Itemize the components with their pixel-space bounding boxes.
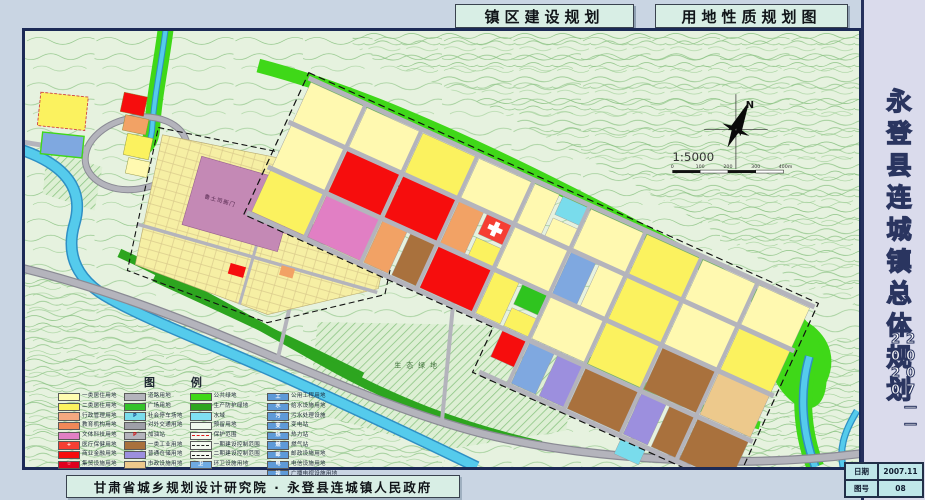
legend-item: 工公用工程用地 [267, 393, 337, 401]
legend-item: 二类居住用地 [58, 403, 117, 411]
legend-item: 水给水设施用地 [267, 403, 337, 411]
legend-glyph: 电 [276, 462, 281, 467]
legend-label: 一类居住用地 [82, 394, 117, 400]
sidebar: 永登县连城镇总体规划 2007——2020 [861, 0, 925, 500]
legend-swatch [58, 432, 80, 441]
legend-item: 对外交通用地 [124, 422, 183, 430]
legend-item: 污污水处理设施 [267, 412, 337, 420]
legend-label: 道路用地 [148, 394, 171, 400]
legend-swatch: ☆ [58, 461, 80, 470]
legend-label: 二期建设控制范围 [214, 452, 260, 458]
scale-tick: 0 [671, 164, 674, 170]
legend-item: 普通仓储用地 [124, 451, 183, 459]
legend-label: 加油站 [148, 433, 165, 439]
legend-label: 一期建设控制范围 [214, 443, 260, 449]
legend-label: 变电站 [291, 423, 308, 429]
legend-glyph: P [133, 414, 137, 419]
legend-column: 道路用地广场用地P社会停车场地对外交通用地P加油站一类工业用地普通仓储用地市政设… [124, 393, 183, 469]
legend-item: 一类工业用地 [124, 441, 183, 449]
legend-swatch: P [124, 412, 146, 421]
info-table: 日期 2007.11 图号 08 [844, 462, 924, 498]
legend-swatch [58, 393, 80, 402]
legend-label: 二类居住用地 [82, 404, 117, 410]
legend-label: 生产防护绿地 [214, 404, 249, 410]
legend-swatch: 电 [267, 461, 289, 470]
north-label: N [746, 100, 754, 111]
legend-label: 预留用地 [214, 423, 237, 429]
west-village [34, 92, 88, 158]
legend-item: 生产防护绿地 [190, 403, 260, 411]
credit-box: 甘肃省城乡规划设计研究院 · 永登县连城镇人民政府 [66, 475, 460, 498]
legend-label: 公用工程用地 [291, 394, 326, 400]
legend-label: 对外交通用地 [148, 423, 183, 429]
legend-swatch [124, 441, 146, 450]
legend-swatch: P [124, 432, 146, 441]
legend-label: 普通仓储用地 [148, 452, 183, 458]
legend-label: 燃气站 [291, 443, 308, 449]
legend-swatch [124, 461, 146, 470]
header-title-plan: 镇区建设规划 [455, 4, 634, 28]
header-title-plan-text: 镇区建设规划 [484, 6, 604, 27]
legend-glyph: 工 [276, 395, 281, 400]
sheet-label: 图号 [845, 480, 878, 497]
legend-item: 道路用地 [124, 393, 183, 401]
legend-item: 变变电站 [267, 422, 337, 430]
legend-item: 公共绿地 [190, 393, 260, 401]
eco-green-label: 生态绿地 [394, 360, 442, 369]
legend-glyph: P [133, 433, 137, 438]
legend-item: ☆集贸设施用地 [58, 461, 117, 469]
legend-label: 公共绿地 [214, 394, 237, 400]
legend-item: 卫环卫设施用地 [190, 461, 260, 469]
legend: 图 例 一类居住用地二类居住用地行政管理用地教育机构用地文体科技用地+医疗保健用… [58, 374, 376, 479]
scale-tick: 100 [696, 164, 705, 170]
legend-swatch: 水 [267, 403, 289, 412]
legend-label: 集贸设施用地 [82, 462, 117, 468]
legend-glyph: 卫 [198, 462, 203, 467]
legend-glyph: 水 [276, 404, 281, 409]
legend-column: 一类居住用地二类居住用地行政管理用地教育机构用地文体科技用地+医疗保健用地商业金… [58, 393, 117, 469]
legend-label: 文体科技用地 [82, 433, 117, 439]
legend-swatch [190, 451, 212, 460]
legend-swatch [124, 422, 146, 431]
legend-item: 一类居住用地 [58, 393, 117, 401]
scale-text: 1:5000 [672, 150, 714, 164]
legend-swatch [190, 412, 212, 421]
legend-item: +医疗保健用地 [58, 441, 117, 449]
legend-label: 商业金融用地 [82, 452, 117, 458]
legend-swatch [58, 422, 80, 431]
legend-title: 图 例 [144, 374, 376, 390]
legend-column: 公共绿地生产防护绿地水域预留用地保护范围一期建设控制范围二期建设控制范围卫环卫设… [190, 393, 260, 469]
legend-glyph: ☆ [67, 462, 71, 467]
date-value: 2007.11 [878, 463, 923, 480]
legend-swatch [124, 451, 146, 460]
legend-label: 医疗保健用地 [82, 443, 117, 449]
legend-swatch [190, 393, 212, 402]
legend-label: 行政管理用地 [82, 414, 117, 420]
legend-item: 文体科技用地 [58, 432, 117, 440]
legend-swatch [190, 432, 212, 441]
legend-label: 环卫设施用地 [214, 462, 249, 468]
legend-swatch [190, 441, 212, 450]
legend-swatch [190, 403, 212, 412]
legend-label: 水域 [214, 414, 226, 420]
legend-item: 水域 [190, 412, 260, 420]
scale-tick: 200 [723, 164, 732, 170]
legend-swatch: 变 [267, 422, 289, 431]
legend-swatch [58, 412, 80, 421]
legend-item: 商业金融用地 [58, 451, 117, 459]
legend-item: 保护范围 [190, 432, 260, 440]
legend-label: 保护范围 [214, 433, 237, 439]
legend-item: 教育机构用地 [58, 422, 117, 430]
legend-swatch: + [58, 441, 80, 450]
legend-item: 行政管理用地 [58, 412, 117, 420]
scale-tick: 400m [779, 164, 793, 170]
legend-item: P社会停车场地 [124, 412, 183, 420]
legend-swatch [124, 403, 146, 412]
legend-label: 热力站 [291, 433, 308, 439]
legend-item: 广场用地 [124, 403, 183, 411]
legend-swatch [124, 393, 146, 402]
legend-glyph: 邮 [276, 453, 281, 458]
legend-swatch: 工 [267, 393, 289, 402]
legend-item: 预留用地 [190, 422, 260, 430]
legend-label: 邮政设施用地 [291, 452, 326, 458]
legend-columns: 一类居住用地二类居住用地行政管理用地教育机构用地文体科技用地+医疗保健用地商业金… [58, 393, 376, 479]
header-title-sheet-text: 用地性质规划图 [681, 6, 821, 27]
legend-item: 邮邮政设施用地 [267, 451, 337, 459]
plan-sheet: 镇区建设规划 用地性质规划图 [0, 0, 925, 500]
legend-label: 一类工业用地 [148, 443, 183, 449]
legend-item: 市政设施用地 [124, 461, 183, 469]
legend-item: 电电信设施用地 [267, 461, 337, 469]
legend-label: 社会停车场地 [148, 414, 183, 420]
legend-swatch [58, 403, 80, 412]
legend-swatch: 邮 [267, 451, 289, 460]
scale-tick: 300 [751, 164, 760, 170]
legend-swatch: 燃 [267, 441, 289, 450]
legend-column: 工公用工程用地水给水设施用地污污水处理设施变变电站热热力站燃燃气站邮邮政设施用地… [267, 393, 337, 479]
legend-item: 一期建设控制范围 [190, 441, 260, 449]
credit-text: 甘肃省城乡规划设计研究院 · 永登县连城镇人民政府 [94, 477, 432, 496]
legend-label: 电信设施用地 [291, 462, 326, 468]
legend-glyph: 变 [276, 424, 281, 429]
legend-item: P加油站 [124, 432, 183, 440]
legend-label: 给水设施用地 [291, 404, 326, 410]
legend-glyph: 热 [276, 433, 281, 438]
legend-label: 广场用地 [148, 404, 171, 410]
legend-item: 二期建设控制范围 [190, 451, 260, 459]
legend-label: 污水处理设施 [291, 414, 326, 420]
legend-label: 教育机构用地 [82, 423, 117, 429]
sheet-value: 08 [878, 480, 923, 497]
legend-item: 燃燃气站 [267, 441, 337, 449]
legend-swatch: 卫 [190, 461, 212, 470]
legend-item: 热热力站 [267, 432, 337, 440]
legend-glyph: 污 [276, 414, 281, 419]
legend-label: 市政设施用地 [148, 462, 183, 468]
date-label: 日期 [845, 463, 878, 480]
header-title-sheet: 用地性质规划图 [655, 4, 848, 28]
legend-swatch: 热 [267, 432, 289, 441]
legend-swatch: 污 [267, 412, 289, 421]
legend-glyph: 燃 [276, 443, 281, 448]
legend-swatch [58, 451, 80, 460]
legend-swatch [190, 422, 212, 431]
legend-glyph: + [67, 443, 71, 448]
map-frame: 鲁土司衙门 [22, 28, 862, 470]
